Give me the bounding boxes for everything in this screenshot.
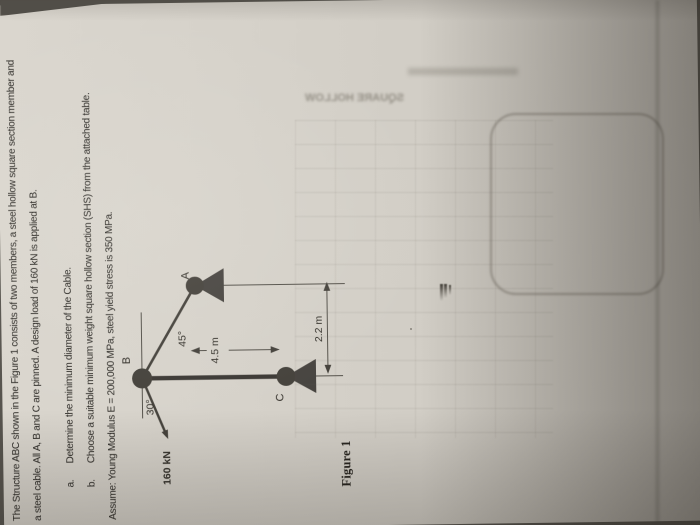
dim-bc-arrow-down — [270, 346, 279, 353]
dim-bc-label: 4.5 m — [209, 336, 221, 363]
member-bc — [142, 376, 286, 378]
pin-b-circle — [131, 368, 151, 388]
load-arrow-head — [161, 429, 171, 440]
horizontal-reference-line — [141, 312, 142, 418]
paper-sheet: The Structure ABC shown in the Figure 1 … — [0, 0, 700, 525]
dim-ca-label: 2.2 m — [312, 315, 324, 342]
joint-a-label: A — [179, 271, 191, 279]
dim-ca-arrow-left — [324, 364, 331, 373]
load-angle-label: 30° — [144, 399, 156, 415]
figure-caption: Figure 1 — [338, 440, 354, 486]
dim-ca-line — [326, 283, 327, 371]
photo-stage: The Structure ABC shown in the Figure 1 … — [0, 0, 700, 525]
joint-b-label: B — [120, 356, 132, 364]
joint-c-label: C — [274, 393, 286, 401]
dim-ca-arrow-right — [323, 281, 330, 290]
dim-bc-arrow-up — [190, 347, 199, 354]
pin-c-circle — [276, 366, 295, 385]
cable-angle-label: 45° — [176, 330, 188, 346]
load-value-label: 160 kN — [161, 451, 173, 485]
